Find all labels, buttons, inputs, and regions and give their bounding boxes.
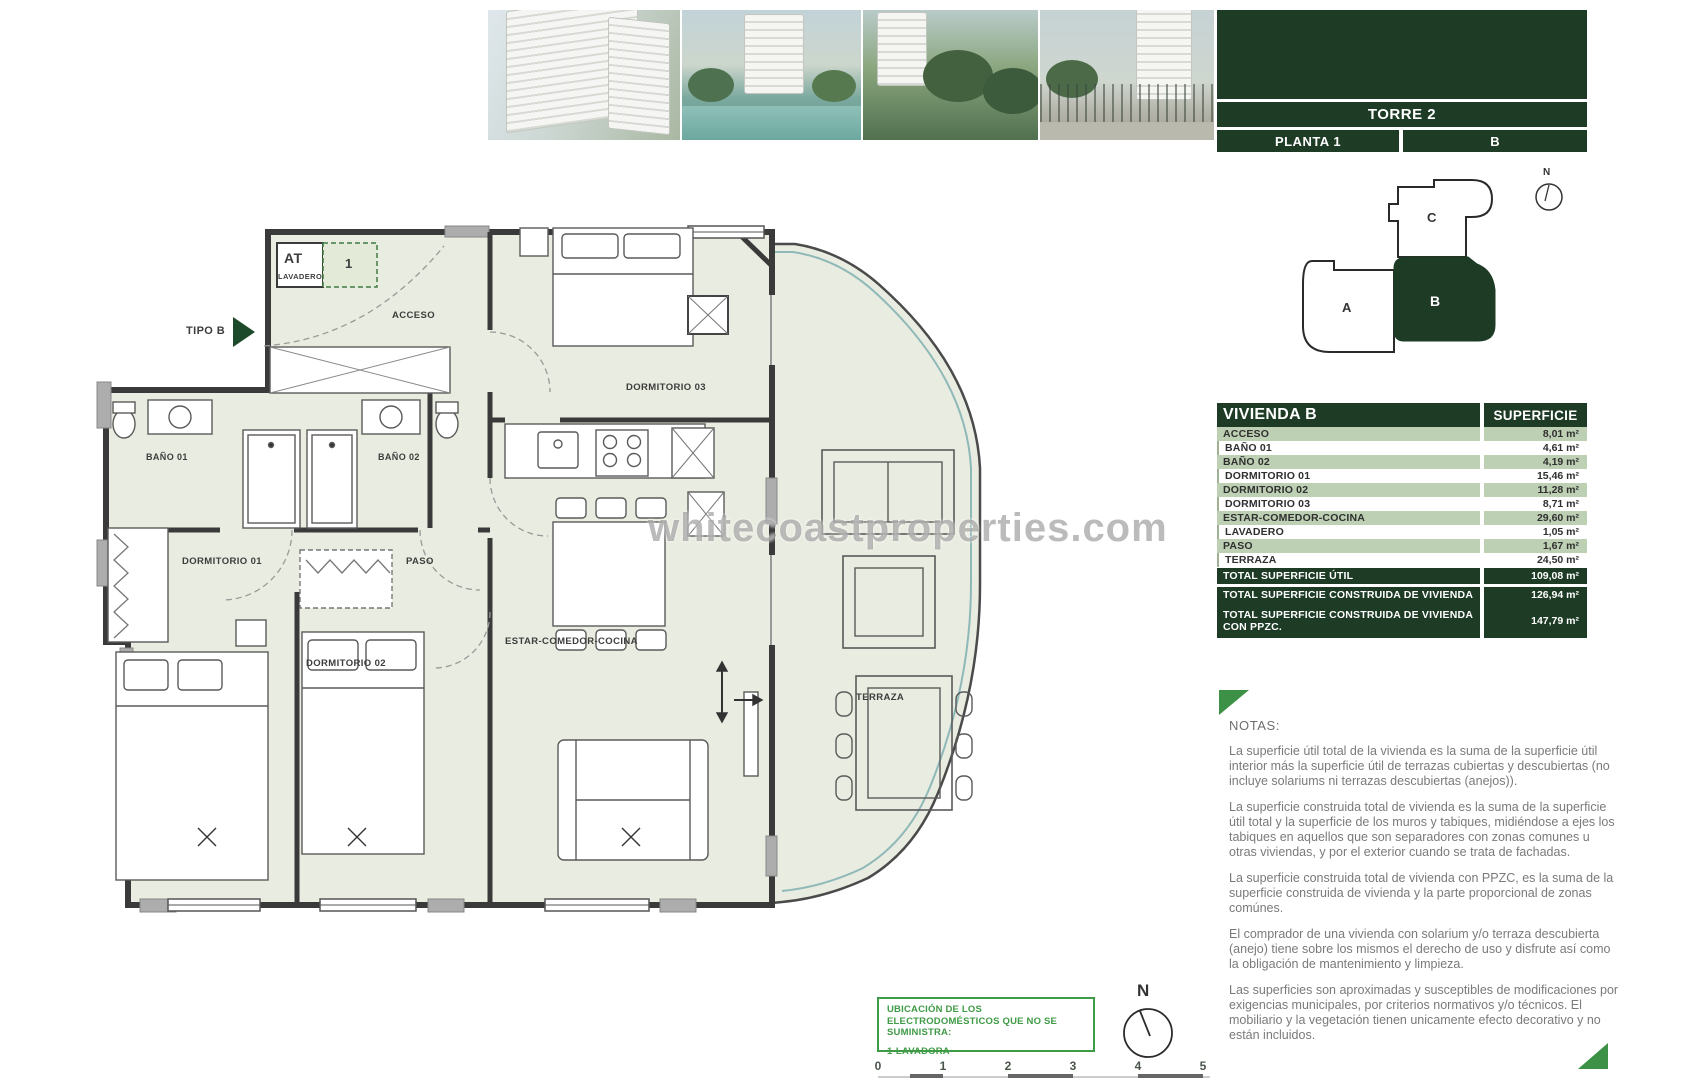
notes-paragraph: El comprador de una vivienda con solariu…: [1229, 927, 1619, 972]
scale-bar: [878, 1074, 1210, 1078]
room-label-dormitorio-03: DORMITORIO 03: [626, 382, 706, 393]
room-label-bano-01: BAÑO 01: [146, 452, 188, 462]
notes-title: NOTAS:: [1229, 718, 1280, 733]
watermark-text: whitecoastproperties.com: [648, 506, 1168, 551]
total-label: TOTAL SUPERFICIE ÚTIL: [1217, 568, 1480, 584]
keyplan-label-b: B: [1430, 293, 1440, 309]
room-label-acceso: ACCESO: [392, 310, 435, 321]
table-row-label: BAÑO 02: [1217, 455, 1480, 469]
table-row-label: ACCESO: [1217, 427, 1480, 441]
table-row: BAÑO 014,61 m²: [1217, 441, 1587, 455]
table-row-label: DORMITORIO 03: [1217, 497, 1480, 511]
table-row: TERRAZA24,50 m²: [1217, 553, 1587, 567]
panel-header-block: [1217, 10, 1587, 99]
table-row-label: TERRAZA: [1217, 553, 1480, 567]
table-row-label: LAVADERO: [1217, 525, 1480, 539]
table-row-value: 29,60 m²: [1484, 511, 1587, 525]
torre-title-bar: TORRE 2: [1217, 102, 1587, 127]
notes-paragraph: La superficie útil total de la vivienda …: [1229, 744, 1619, 789]
total-label: TOTAL SUPERFICIE CONSTRUIDA DE VIVIENDA …: [1217, 603, 1480, 638]
table-row-value: 1,05 m²: [1484, 525, 1587, 539]
room-label-tipo-b: TIPO B: [186, 325, 225, 337]
compass: [1124, 1009, 1172, 1057]
table-row-label: PASO: [1217, 539, 1480, 553]
notes-body: La superficie útil total de la vivienda …: [1229, 744, 1619, 1054]
scale-number: 0: [871, 1059, 885, 1073]
unit-letter-cell: B: [1403, 130, 1587, 152]
table-row-value: 11,28 m²: [1484, 483, 1587, 497]
table-row-value: 4,19 m²: [1484, 455, 1587, 469]
notes-paragraph: La superficie construida total de vivien…: [1229, 871, 1619, 916]
keyplan-label-a: A: [1342, 300, 1351, 315]
table-row: PASO1,67 m²: [1217, 539, 1587, 553]
table-row-value: 8,01 m²: [1484, 427, 1587, 441]
planta-cell: PLANTA 1: [1217, 130, 1399, 152]
table-row: DORMITORIO 0115,46 m²: [1217, 469, 1587, 483]
notes-paragraph: Las superficies son aproximadas y suscep…: [1229, 983, 1619, 1043]
room-label-terraza: TERRAZA: [856, 692, 904, 703]
table-superficie-header: SUPERFICIE: [1484, 403, 1587, 427]
room-label-lavadero: LAVADERO: [278, 272, 322, 281]
table-row-label: DORMITORIO 02: [1217, 483, 1480, 497]
room-label-bano-02: BAÑO 02: [378, 452, 420, 462]
table-row-value: 1,67 m²: [1484, 539, 1587, 553]
table-row-label: BAÑO 01: [1217, 441, 1480, 455]
scale-number: 2: [1001, 1059, 1015, 1073]
table-row: ACCESO8,01 m²: [1217, 427, 1587, 441]
page-canvas: TIPO B AT LAVADERO 1 ACCESO BAÑO 01 BAÑO…: [0, 0, 1700, 1080]
total-value: 147,79 m²: [1484, 603, 1587, 638]
keyplan-north-label: N: [1543, 167, 1550, 178]
scale-number: 3: [1066, 1059, 1080, 1073]
surface-table-rows: ACCESO8,01 m² BAÑO 014,61 m² BAÑO 024,19…: [1217, 427, 1587, 567]
table-row: DORMITORIO 038,71 m²: [1217, 497, 1587, 511]
room-label-at: AT: [284, 250, 302, 266]
scale-number: 1: [936, 1059, 950, 1073]
table-row-value: 8,71 m²: [1484, 497, 1587, 511]
table-row-value: 4,61 m²: [1484, 441, 1587, 455]
keyplan-label-c: C: [1427, 210, 1436, 225]
surface-table-header: VIVIENDA B SUPERFICIE: [1217, 403, 1587, 427]
planta-label: PLANTA 1: [1275, 134, 1341, 149]
appliance-note-title: UBICACIÓN DE LOS ELECTRODOMÉSTICOS QUE N…: [887, 1004, 1085, 1039]
total-row: TOTAL SUPERFICIE ÚTIL109,08 m²: [1217, 568, 1587, 584]
scale-number: 4: [1131, 1059, 1145, 1073]
total-row: TOTAL SUPERFICIE CONSTRUIDA DE VIVIENDA1…: [1217, 587, 1587, 603]
torre-title: TORRE 2: [1368, 106, 1436, 123]
table-row: LAVADERO1,05 m²: [1217, 525, 1587, 539]
room-label-paso: PASO: [406, 556, 434, 567]
room-label-dormitorio-02: DORMITORIO 02: [306, 658, 386, 669]
table-title: VIVIENDA B: [1217, 403, 1480, 427]
appliance-note-item: 1-LAVADORA: [887, 1046, 1085, 1057]
compass-north-label: N: [1137, 981, 1149, 1001]
room-label-estar-comedor-cocina: ESTAR-COMEDOR-COCINA: [505, 636, 638, 647]
room-label-dormitorio-01: DORMITORIO 01: [182, 556, 262, 567]
surface-table-totals: TOTAL SUPERFICIE ÚTIL109,08 m² TOTAL SUP…: [1217, 568, 1587, 638]
terraza-outline: [772, 244, 980, 903]
unit-letter: B: [1490, 134, 1499, 149]
total-label: TOTAL SUPERFICIE CONSTRUIDA DE VIVIENDA: [1217, 587, 1480, 603]
table-row-label: ESTAR-COMEDOR-COCINA: [1217, 511, 1480, 525]
table-row: DORMITORIO 0211,28 m²: [1217, 483, 1587, 497]
key-plan: [1303, 180, 1562, 352]
appliance-note-box: UBICACIÓN DE LOS ELECTRODOMÉSTICOS QUE N…: [877, 997, 1095, 1052]
notes-paragraph: La superficie construida total de vivien…: [1229, 800, 1619, 860]
table-row: ESTAR-COMEDOR-COCINA29,60 m²: [1217, 511, 1587, 525]
tipo-b-arrow-icon: [233, 317, 255, 347]
table-row-label: DORMITORIO 01: [1217, 469, 1480, 483]
table-row-value: 15,46 m²: [1484, 469, 1587, 483]
table-row: BAÑO 024,19 m²: [1217, 455, 1587, 469]
table-row-value: 24,50 m²: [1484, 553, 1587, 567]
total-value: 109,08 m²: [1484, 568, 1587, 584]
lavadora-position-number: 1: [345, 256, 353, 271]
total-value: 126,94 m²: [1484, 587, 1587, 603]
total-row: TOTAL SUPERFICIE CONSTRUIDA DE VIVIENDA …: [1217, 603, 1587, 638]
scale-number: 5: [1196, 1059, 1210, 1073]
